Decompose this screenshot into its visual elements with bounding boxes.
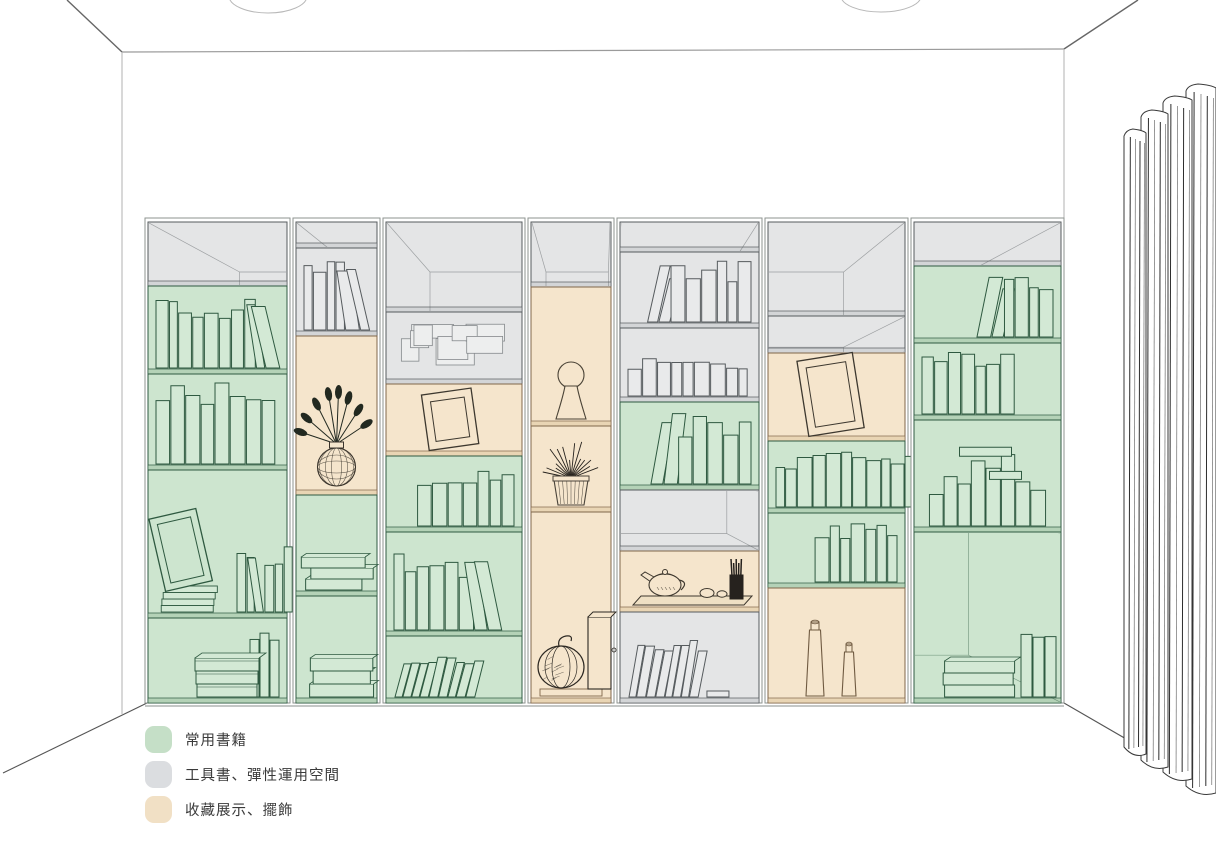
shelf-compartment-green bbox=[148, 286, 287, 374]
picture-frame-icon bbox=[421, 388, 478, 450]
legend: 常用書籍 工具書、彈性運用空間 收藏展示、擺飾 bbox=[145, 726, 340, 831]
shelf-compartment-green bbox=[148, 374, 287, 470]
legend-item-books: 常用書籍 bbox=[145, 726, 340, 753]
legend-swatch-gray bbox=[145, 761, 172, 788]
shelf-compartment-gray bbox=[386, 312, 522, 384]
shelf-compartment-green bbox=[914, 343, 1061, 420]
shelf-column bbox=[617, 218, 762, 703]
interior-elevation-diagram: 常用書籍 工具書、彈性運用空間 收藏展示、擺飾 bbox=[0, 0, 1216, 860]
legend-swatch-green bbox=[145, 726, 172, 753]
shelf-compartment-beige bbox=[620, 551, 759, 612]
shelf-compartment-beige bbox=[531, 426, 611, 512]
shelf-compartment-green bbox=[296, 495, 378, 596]
shelf-compartment-green bbox=[386, 456, 522, 532]
shelf-compartment-green bbox=[386, 636, 522, 703]
shelf-column bbox=[736, 218, 920, 703]
shelf-compartment-green bbox=[620, 402, 759, 490]
shelf-column bbox=[383, 218, 537, 703]
shelf-compartment-beige bbox=[768, 588, 905, 703]
shelf-compartment-green bbox=[914, 420, 1061, 532]
legend-swatch-beige bbox=[145, 796, 172, 823]
shelf-compartment-beige bbox=[768, 353, 905, 441]
bookshelf-elevation bbox=[145, 218, 1064, 706]
picture-frame-icon bbox=[797, 353, 864, 437]
shelf-compartment-gray bbox=[620, 328, 759, 402]
shelf-compartment-gray bbox=[296, 248, 377, 336]
shelf-compartment-green bbox=[148, 618, 287, 703]
curtain-icon bbox=[1124, 84, 1216, 794]
ceiling-lights-icon bbox=[229, 0, 921, 13]
shelf-compartment-green bbox=[296, 596, 379, 703]
shelf-compartment-beige bbox=[531, 287, 611, 426]
shelf-compartment-gray bbox=[620, 252, 759, 328]
shelf-compartment-beige bbox=[293, 336, 377, 495]
shelf-compartment-beige bbox=[531, 512, 616, 703]
shelf-compartment-green bbox=[768, 513, 905, 588]
shelf-column bbox=[528, 218, 616, 703]
shelf-compartment-beige bbox=[386, 384, 522, 456]
shelf-compartment-green bbox=[914, 266, 1061, 343]
legend-label: 工具書、彈性運用空間 bbox=[185, 764, 340, 785]
shelf-compartment-gray bbox=[617, 486, 759, 551]
legend-label: 收藏展示、擺飾 bbox=[185, 799, 294, 820]
legend-item-display: 收藏展示、擺飾 bbox=[145, 796, 340, 823]
shelf-compartment-green bbox=[148, 470, 292, 618]
shelf-compartment-green bbox=[386, 532, 522, 636]
shelf-compartment-green bbox=[768, 441, 920, 513]
legend-label: 常用書籍 bbox=[185, 729, 247, 750]
shelf-compartment-gray bbox=[620, 612, 759, 703]
legend-item-reference: 工具書、彈性運用空間 bbox=[145, 761, 340, 788]
